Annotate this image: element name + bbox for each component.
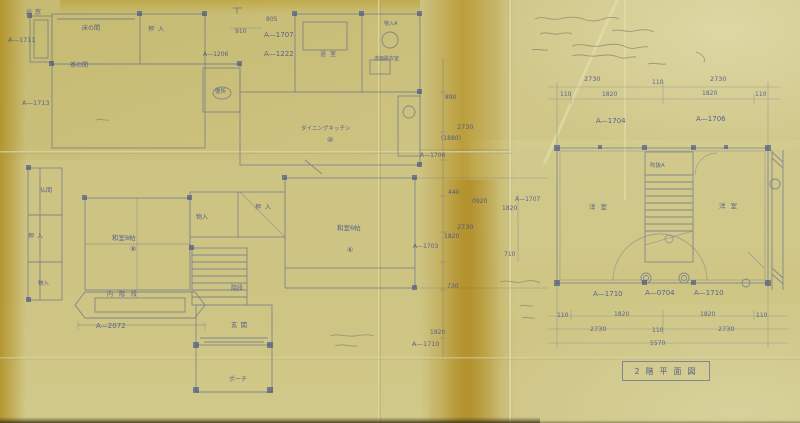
dim-2730-t1: 2730 — [584, 76, 601, 83]
room-label-oshiire-mid: 押入 — [255, 205, 275, 211]
dim-2730-c1: 2730 — [457, 124, 474, 131]
room-label-fukinuke: 吹抜A — [650, 164, 665, 170]
room-label-yokushitsu: 浴室 — [320, 52, 340, 58]
dim-1820-c2: 1820 — [444, 234, 459, 240]
dim-1820-t2: 1820 — [702, 91, 717, 97]
ref-code-a1206: A—1206 — [203, 52, 228, 58]
room-label-benjo: 便所 — [215, 90, 226, 96]
dim-2730-c2: 2730 — [457, 224, 474, 231]
dim-1820-c3: 1820 — [430, 330, 445, 336]
room-label-washitsu8: 和室8帖 — [112, 235, 136, 242]
dim-110-b1: 110 — [557, 313, 568, 319]
dim-730: 730 — [447, 284, 458, 290]
dim-2730-b1: 2730 — [590, 326, 607, 333]
dim-910: 910 — [235, 29, 246, 35]
second-floor-plan — [557, 148, 783, 290]
ref-code-a1711: A—1711 — [8, 37, 36, 44]
room-label-uchikaidan: 内階段 — [107, 292, 143, 298]
room-label-demado: 出窓 — [26, 10, 44, 16]
floor-plan-drawing — [0, 0, 800, 423]
room-label-tokonoma: 床の間 — [82, 26, 100, 32]
dim-110-b2: 110 — [756, 313, 767, 319]
dim-890: 890 — [445, 95, 456, 101]
dim-110-t2: 110 — [755, 92, 766, 98]
room-label-kaidan: 階段 — [231, 286, 243, 292]
dimension-lines — [78, 28, 788, 358]
room-tag-dk: ⑩ — [327, 137, 333, 144]
dim-805: 805 — [266, 17, 277, 23]
dim-110-t1: 110 — [560, 92, 571, 98]
ref-code-a1710-mid: A—1710 — [412, 341, 440, 348]
ref-code-a1704: A—1704 — [596, 118, 626, 125]
room-label-oshiire-left: 押入 — [28, 234, 46, 240]
dim-total-5570: 5570 — [650, 341, 665, 347]
ref-code-a1710-b1: A—1710 — [593, 291, 623, 298]
room-tag-washitsu6: ⑥ — [347, 247, 353, 254]
dim-440: 440 — [448, 190, 459, 196]
room-label-butsuma: 仏間 — [40, 188, 52, 194]
drawing-title-box: 2階平面図 — [622, 361, 710, 381]
room-label-monoire-bl: 物入 — [38, 282, 49, 288]
dim-110-b3: 110 — [652, 328, 663, 334]
ref-code-a0704: A—0704 — [645, 290, 675, 297]
ref-code-a1222: A—1222 — [264, 51, 294, 58]
dim-1820-b2: 1820 — [700, 312, 715, 318]
room-label-senmen: 洗面脱衣室 — [374, 57, 399, 62]
ref-code-a1710-b2: A—1710 — [694, 290, 724, 297]
dim-0920: 0920 — [472, 199, 487, 205]
dim-1820-c1: 1820 — [502, 206, 517, 212]
ref-code-a1707-top: A—1707 — [264, 32, 294, 39]
room-label-monoire-mid: 物入 — [196, 215, 208, 221]
room-label-monoire-a: 物入A — [384, 22, 397, 27]
room-label-oshiire-top: 押入 — [148, 27, 168, 33]
room-label-dk: ダイニングキッチン — [301, 127, 351, 133]
ref-code-a2072: A—2072 — [96, 323, 126, 330]
room-label-chanoma: 茶の間 — [70, 63, 88, 69]
ref-code-a1706-mid: A—1706 — [420, 153, 445, 159]
ref-code-a1703: A—1703 — [413, 244, 438, 250]
dim-1880: (1880) — [441, 136, 461, 142]
dim-1820-b1: 1820 — [614, 312, 629, 318]
ref-code-a1706: A—1706 — [696, 116, 726, 123]
drawing-title: 2階平面図 — [630, 366, 701, 377]
room-label-washitsu6: 和室6帖 — [337, 225, 361, 232]
dim-110-t: 110 — [652, 80, 663, 86]
room-label-yoshitsu-left: 洋室 — [589, 204, 612, 211]
dim-1820-t1: 1820 — [602, 92, 617, 98]
dim-2730-t2: 2730 — [710, 76, 727, 83]
room-tag-washitsu8: ⑧ — [130, 246, 136, 253]
ref-code-a1707-mid: A—1707 — [515, 197, 540, 203]
ref-code-a1713: A—1713 — [22, 100, 50, 107]
room-label-genkan: 玄関 — [231, 322, 250, 329]
blueprint-scan: 出窓床の間押入A—1711茶の間A—1713仏間押入和室8帖⑧物入内階段A—20… — [0, 0, 800, 423]
room-label-yoshitsu-right: 洋室 — [719, 203, 742, 210]
room-label-porch: ポーチ — [229, 377, 247, 383]
dim-710: 710 — [504, 252, 515, 258]
dim-2730-b2: 2730 — [718, 326, 735, 333]
